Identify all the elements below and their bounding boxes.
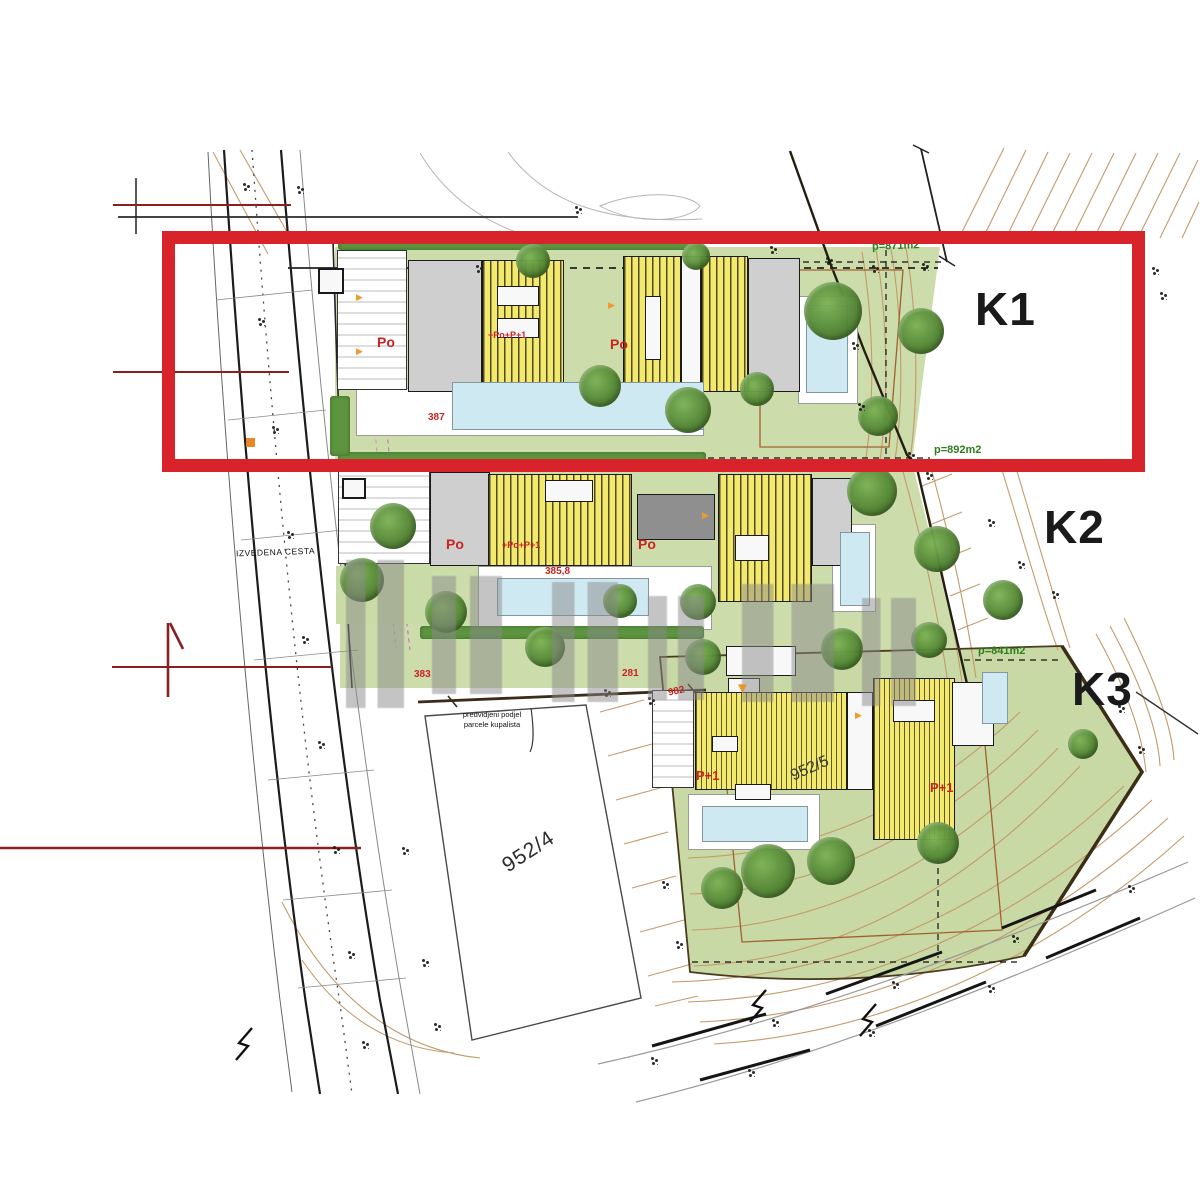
watermark: [648, 596, 704, 700]
survey-mark-icon: [297, 186, 300, 189]
utility-box: [342, 478, 366, 499]
skylight: [735, 784, 771, 800]
watermark: [862, 598, 916, 706]
survey-mark-icon: [662, 881, 665, 884]
survey-mark-icon: [926, 472, 929, 475]
watermark: [742, 584, 834, 702]
tree-icon: [847, 466, 897, 516]
survey-mark-icon: [402, 847, 405, 850]
survey-mark-icon: [676, 941, 679, 944]
tree-icon: [917, 822, 959, 864]
direction-arrow-icon: ▶: [702, 510, 709, 521]
tree-icon: [741, 844, 795, 898]
survey-mark-icon: [287, 531, 290, 534]
survey-mark-icon: [302, 636, 305, 639]
pool: [702, 806, 808, 842]
survey-mark-icon: [651, 1057, 654, 1060]
building-annotation: +Po+P+1: [502, 540, 540, 550]
survey-mark-icon: [1128, 885, 1131, 888]
tree-icon: [701, 867, 743, 909]
survey-mark-icon: [348, 951, 351, 954]
spot-elevation: 281: [622, 668, 639, 679]
survey-mark-icon: [988, 985, 991, 988]
skylight: [712, 736, 738, 752]
survey-mark-icon: [1160, 292, 1163, 295]
tree-icon: [914, 526, 960, 572]
parcel-952-4-outline: [425, 705, 641, 1040]
survey-mark-icon: [362, 1041, 365, 1044]
direction-arrow-icon: ▶: [855, 710, 862, 721]
floor-label-po: Po: [446, 536, 464, 552]
tree-icon: [983, 580, 1023, 620]
survey-mark-icon: [1052, 591, 1055, 594]
survey-mark-icon: [988, 519, 991, 522]
survey-mark-icon: [1018, 561, 1021, 564]
pool: [840, 532, 870, 606]
survey-mark-icon: [1138, 746, 1141, 749]
watermark: [346, 560, 404, 708]
tree-icon: [1068, 729, 1098, 759]
skylight: [735, 535, 769, 561]
entry-arrow-icon: ▼: [735, 680, 750, 697]
survey-mark-icon: [318, 741, 321, 744]
parcel-callout: predvidjeni podjel parcele kupalista: [450, 710, 534, 730]
survey-mark-icon: [1012, 935, 1015, 938]
watermark: [552, 582, 618, 702]
skylight: [545, 480, 593, 502]
building-garage-row3: [652, 690, 694, 788]
floor-label-po: Po: [638, 536, 656, 552]
survey-mark-icon: [868, 1029, 871, 1032]
area-label-k3: p=841m2: [978, 645, 1025, 657]
callout-line-2: parcele kupalista: [464, 720, 520, 729]
survey-mark-icon: [333, 846, 336, 849]
pool: [982, 672, 1008, 724]
plot-label-k3: K3: [1072, 662, 1133, 716]
survey-mark-icon: [748, 1069, 751, 1072]
floor-label-p1: P+1: [696, 768, 720, 783]
watermark: [432, 576, 502, 694]
k1-highlight-rectangle: [162, 231, 1145, 472]
tree-icon: [370, 503, 416, 549]
survey-mark-icon: [243, 183, 246, 186]
survey-mark-icon: [434, 1023, 437, 1026]
tree-icon: [911, 622, 947, 658]
site-plan: K1 K2 K3 p=871m2 p=892m2 p=841m2 Po Po P…: [0, 0, 1200, 1194]
building-gap: [847, 692, 873, 790]
spot-elevation: 385,8: [545, 566, 570, 577]
floor-label-p1: P+1: [930, 780, 954, 795]
plot-label-k2: K2: [1044, 500, 1105, 554]
survey-mark-icon: [422, 959, 425, 962]
spot-elevation: 383: [414, 669, 431, 680]
survey-mark-icon: [772, 1019, 775, 1022]
survey-mark-icon: [892, 981, 895, 984]
survey-mark-icon: [575, 206, 578, 209]
callout-line-1: predvidjeni podjel: [463, 710, 521, 719]
tree-icon: [807, 837, 855, 885]
survey-mark-icon: [1152, 267, 1155, 270]
